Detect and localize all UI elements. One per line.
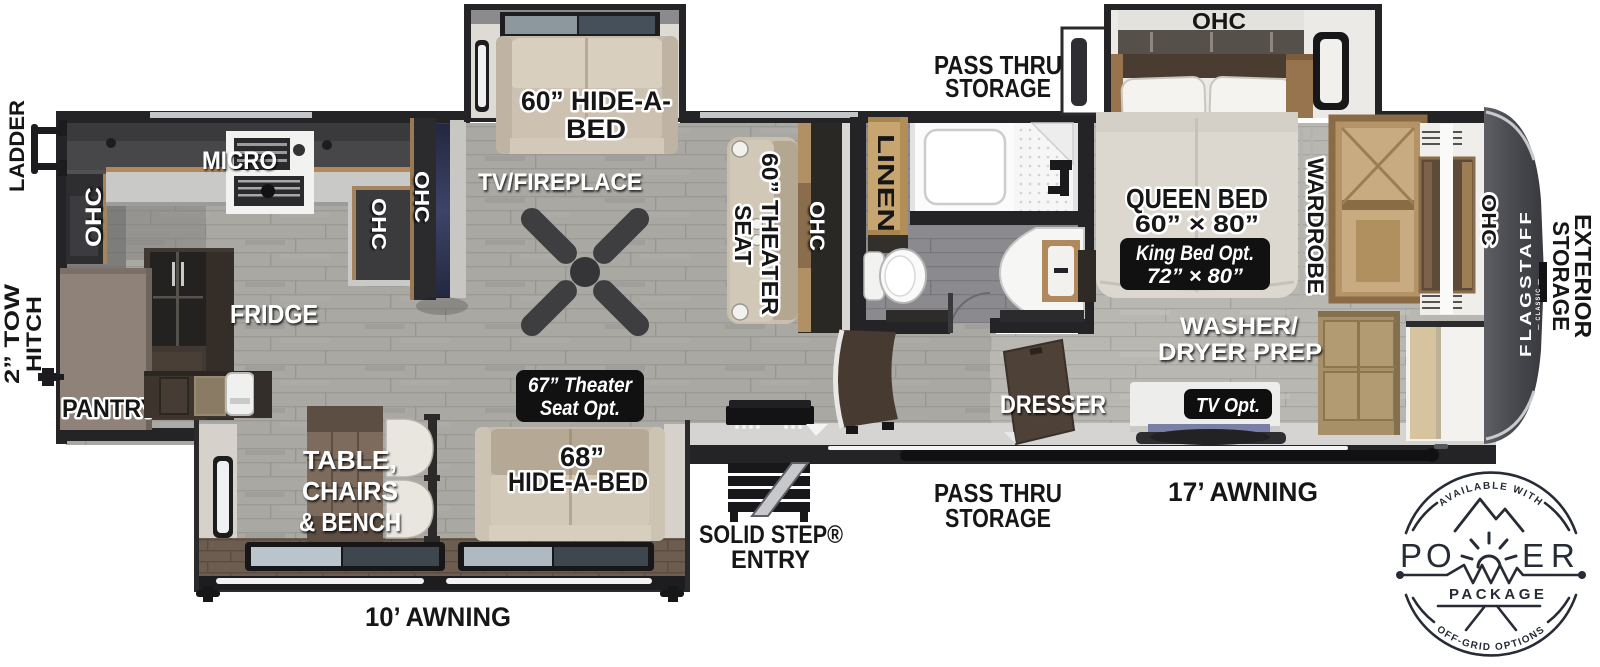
svg-text:& BENCH: & BENCH <box>299 507 401 537</box>
svg-text:FRIDGE: FRIDGE <box>230 299 318 329</box>
svg-text:OHC: OHC <box>805 201 828 251</box>
svg-text:LINEN: LINEN <box>873 134 899 232</box>
svg-text:P: P <box>1400 537 1422 574</box>
svg-text:O: O <box>1426 537 1452 574</box>
svg-text:TV Opt.: TV Opt. <box>1196 395 1260 417</box>
svg-text:HIDE-A-BED: HIDE-A-BED <box>508 467 648 497</box>
svg-text:WASHER/: WASHER/ <box>1180 313 1298 340</box>
svg-text:Seat Opt.: Seat Opt. <box>540 397 620 420</box>
svg-text:OHC: OHC <box>410 171 432 223</box>
svg-text:OHC: OHC <box>81 187 106 247</box>
svg-text:60” HIDE-A-: 60” HIDE-A- <box>521 86 671 116</box>
svg-text:FLAGSTAFF: FLAGSTAFF <box>1518 209 1535 357</box>
svg-text:2” TOWHITCH: 2” TOWHITCH <box>1 284 46 384</box>
svg-text:PANTRY: PANTRY <box>62 395 156 423</box>
svg-text:E: E <box>1522 537 1544 574</box>
svg-text:10’ AWNING: 10’ AWNING <box>365 602 511 632</box>
svg-text:OHC: OHC <box>367 198 389 250</box>
svg-text:PACKAGE: PACKAGE <box>1449 586 1547 603</box>
svg-text:TABLE,: TABLE, <box>303 445 397 475</box>
svg-text:King Bed Opt.: King Bed Opt. <box>1136 242 1254 265</box>
svg-text:TV/FIREPLACE: TV/FIREPLACE <box>478 169 642 196</box>
svg-text:STORAGE: STORAGE <box>945 503 1051 533</box>
svg-text:LADDER: LADDER <box>6 100 29 192</box>
svg-text:SOLID STEP®: SOLID STEP® <box>699 521 843 549</box>
svg-text:ENTRY: ENTRY <box>731 546 810 574</box>
svg-text:OHC: OHC <box>1477 194 1499 246</box>
svg-text:MICRO: MICRO <box>202 147 277 175</box>
svg-text:60” × 80”: 60” × 80” <box>1135 211 1259 238</box>
svg-text:72” × 80”: 72” × 80” <box>1147 265 1244 288</box>
svg-text:R: R <box>1551 537 1575 574</box>
svg-text:DRYER PREP: DRYER PREP <box>1158 339 1322 366</box>
svg-text:WARDROBE: WARDROBE <box>1303 158 1328 294</box>
svg-text:17’ AWNING: 17’ AWNING <box>1168 477 1318 507</box>
svg-text:CHAIRS: CHAIRS <box>302 476 398 506</box>
svg-text:STORAGE: STORAGE <box>945 73 1051 103</box>
svg-text:BED: BED <box>566 114 626 144</box>
svg-text:— CLASSIC —: — CLASSIC — <box>1535 278 1542 330</box>
svg-text:DRESSER: DRESSER <box>1000 391 1106 419</box>
svg-text:OHC: OHC <box>1192 8 1246 34</box>
svg-text:QUEEN BED: QUEEN BED <box>1126 183 1268 214</box>
svg-text:EXTERIORSTORAGE: EXTERIORSTORAGE <box>1548 214 1596 338</box>
svg-text:67” Theater: 67” Theater <box>528 374 634 397</box>
